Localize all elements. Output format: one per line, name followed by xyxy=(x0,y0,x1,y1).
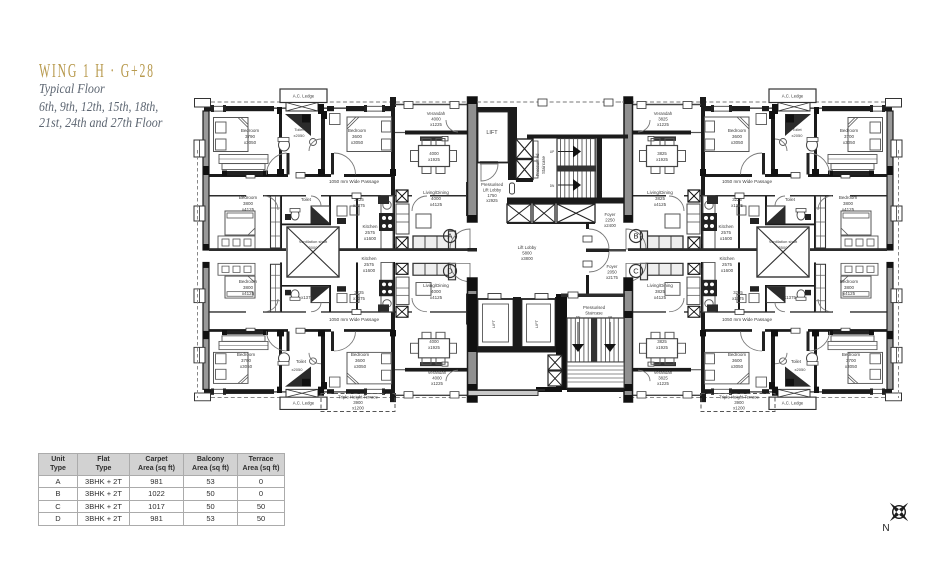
svg-text:Bedroom: Bedroom xyxy=(728,352,747,357)
svg-text:x1600: x1600 xyxy=(363,268,376,273)
svg-text:x2050: x2050 xyxy=(792,133,804,138)
svg-text:Living/Dining: Living/Dining xyxy=(647,283,673,288)
svg-text:Ventilation shaft: Ventilation shaft xyxy=(299,239,328,244)
svg-text:Kitchen: Kitchen xyxy=(361,256,377,261)
svg-text:3825: 3825 xyxy=(657,151,667,156)
svg-text:x3050: x3050 xyxy=(731,140,744,145)
svg-text:Staircase: Staircase xyxy=(541,155,546,174)
svg-text:x2925: x2925 xyxy=(486,198,498,203)
svg-text:x3800: x3800 xyxy=(521,256,533,261)
svg-text:x1200: x1200 xyxy=(733,406,745,411)
svg-text:Living/Dining: Living/Dining xyxy=(423,283,449,288)
svg-text:3700: 3700 xyxy=(846,358,857,363)
svg-text:Toilet: Toilet xyxy=(785,197,796,202)
svg-text:3825: 3825 xyxy=(658,376,668,381)
svg-text:x1225: x1225 xyxy=(431,381,443,386)
svg-text:3000: 3000 xyxy=(309,245,319,250)
svg-text:A.C. Ledge: A.C. Ledge xyxy=(782,94,804,99)
svg-text:Bedroom: Bedroom xyxy=(239,195,258,200)
svg-text:x3050: x3050 xyxy=(351,140,364,145)
svg-text:3800: 3800 xyxy=(243,285,254,290)
svg-text:x1925: x1925 xyxy=(428,345,440,350)
svg-text:3600: 3600 xyxy=(732,358,743,363)
svg-text:4000: 4000 xyxy=(431,117,441,122)
svg-text:A.C. Ledge: A.C. Ledge xyxy=(293,94,315,99)
svg-text:A.C. Ledge: A.C. Ledge xyxy=(782,401,804,406)
svg-text:1750: 1750 xyxy=(487,193,497,198)
svg-text:4000: 4000 xyxy=(429,339,439,344)
svg-text:x1925: x1925 xyxy=(656,157,668,162)
svg-text:1050 mm Wide Passage: 1050 mm Wide Passage xyxy=(722,179,772,184)
svg-text:3800: 3800 xyxy=(843,201,854,206)
svg-text:Lift Lobby: Lift Lobby xyxy=(518,245,537,250)
svg-text:2250: 2250 xyxy=(605,218,615,223)
svg-text:UP: UP xyxy=(550,150,554,154)
svg-text:4000: 4000 xyxy=(432,376,442,381)
svg-text:Staircase: Staircase xyxy=(585,311,603,316)
svg-text:x1375: x1375 xyxy=(731,203,743,208)
svg-text:Triple Height Terrace: Triple Height Terrace xyxy=(338,395,378,400)
svg-text:x3050: x3050 xyxy=(843,140,856,145)
svg-text:x1225: x1225 xyxy=(657,381,669,386)
svg-text:4000: 4000 xyxy=(431,196,442,201)
svg-text:x1925: x1925 xyxy=(656,345,668,350)
svg-text:Verandah: Verandah xyxy=(427,111,446,116)
svg-text:1050 mm Wide Passage: 1050 mm Wide Passage xyxy=(329,317,379,322)
svg-text:x3050: x3050 xyxy=(354,364,367,369)
svg-text:3900: 3900 xyxy=(734,400,744,405)
svg-text:3700: 3700 xyxy=(844,134,855,139)
svg-text:x4125: x4125 xyxy=(843,291,856,296)
svg-text:3225: 3225 xyxy=(733,290,743,295)
svg-text:4000: 4000 xyxy=(429,151,439,156)
svg-text:x1375: x1375 xyxy=(732,296,744,301)
svg-text:4000: 4000 xyxy=(431,289,442,294)
svg-text:LIFT: LIFT xyxy=(534,319,539,328)
svg-text:Bedroom: Bedroom xyxy=(842,352,861,357)
svg-text:3900: 3900 xyxy=(353,400,363,405)
svg-text:3600: 3600 xyxy=(352,134,363,139)
svg-text:x4125: x4125 xyxy=(654,295,667,300)
svg-text:1050 mm Wide Passage: 1050 mm Wide Passage xyxy=(329,179,379,184)
svg-text:3225: 3225 xyxy=(354,197,364,202)
svg-text:3600: 3600 xyxy=(732,134,743,139)
svg-text:x1925: x1925 xyxy=(428,157,440,162)
svg-text:x4125: x4125 xyxy=(654,202,667,207)
svg-text:3800: 3800 xyxy=(243,201,254,206)
svg-text:Bedroom: Bedroom xyxy=(239,279,258,284)
svg-text:Pressurised: Pressurised xyxy=(481,182,504,187)
svg-text:x1600: x1600 xyxy=(721,268,734,273)
svg-text:Toilet: Toilet xyxy=(296,359,307,364)
svg-text:x3050: x3050 xyxy=(244,140,257,145)
svg-text:x1225: x1225 xyxy=(430,122,442,127)
svg-text:3800: 3800 xyxy=(844,285,855,290)
svg-text:x2050: x2050 xyxy=(294,133,306,138)
svg-text:x2400: x2400 xyxy=(604,223,616,228)
svg-text:Toilet: Toilet xyxy=(301,197,312,202)
svg-text:Living/Dining: Living/Dining xyxy=(423,190,449,195)
svg-text:D: D xyxy=(447,267,453,276)
svg-text:x1200: x1200 xyxy=(352,406,364,411)
svg-text:2575: 2575 xyxy=(364,262,375,267)
svg-text:x3050: x3050 xyxy=(731,364,744,369)
svg-text:3225: 3225 xyxy=(732,197,742,202)
svg-text:2575: 2575 xyxy=(722,262,733,267)
svg-text:3790: 3790 xyxy=(241,358,252,363)
svg-text:2575: 2575 xyxy=(365,230,376,235)
svg-text:x2050: x2050 xyxy=(795,367,807,372)
svg-text:DN: DN xyxy=(550,184,555,188)
svg-text:x4125: x4125 xyxy=(242,207,255,212)
svg-text:Toilet: Toilet xyxy=(792,127,802,132)
svg-text:3825: 3825 xyxy=(657,339,667,344)
svg-text:x4125: x4125 xyxy=(242,291,255,296)
svg-text:x1225: x1225 xyxy=(657,122,669,127)
svg-text:Ventilation shaft: Ventilation shaft xyxy=(769,239,798,244)
svg-text:Foyer: Foyer xyxy=(605,212,617,217)
svg-text:x1375: x1375 xyxy=(353,203,365,208)
svg-text:DN: DN xyxy=(576,316,581,320)
svg-text:x2050: x2050 xyxy=(292,367,304,372)
svg-text:LIFT: LIFT xyxy=(486,130,498,136)
svg-text:2575: 2575 xyxy=(721,230,732,235)
svg-text:UP: UP xyxy=(608,316,612,320)
svg-text:Bedroom: Bedroom xyxy=(351,352,370,357)
svg-text:A.C. Ledge: A.C. Ledge xyxy=(293,401,315,406)
svg-text:x1375: x1375 xyxy=(784,295,796,300)
svg-text:3825: 3825 xyxy=(655,196,666,201)
svg-text:x3050: x3050 xyxy=(845,364,858,369)
svg-text:x1375: x1375 xyxy=(353,296,365,301)
svg-text:x4125: x4125 xyxy=(842,207,855,212)
svg-text:Bedroom: Bedroom xyxy=(728,128,747,133)
svg-text:x1600: x1600 xyxy=(364,236,377,241)
svg-text:x4125: x4125 xyxy=(430,202,443,207)
svg-text:3500: 3500 xyxy=(779,245,789,250)
svg-text:Toilet: Toilet xyxy=(294,127,304,132)
svg-text:3225: 3225 xyxy=(354,290,364,295)
svg-text:x4125: x4125 xyxy=(430,295,443,300)
svg-text:3600: 3600 xyxy=(355,358,366,363)
svg-text:x2175: x2175 xyxy=(606,275,618,280)
svg-text:Lift Lobby: Lift Lobby xyxy=(483,187,502,192)
svg-text:Foyer: Foyer xyxy=(607,264,619,269)
svg-text:Kitchen: Kitchen xyxy=(719,256,735,261)
svg-text:Bedroom: Bedroom xyxy=(241,128,260,133)
svg-text:x3050: x3050 xyxy=(240,364,253,369)
svg-text:A: A xyxy=(447,232,452,241)
svg-text:LIFT: LIFT xyxy=(491,319,496,328)
svg-text:Toilet: Toilet xyxy=(791,359,802,364)
svg-text:1050 mm Wide Passage: 1050 mm Wide Passage xyxy=(722,317,772,322)
svg-text:2050: 2050 xyxy=(607,270,617,275)
svg-text:x1600: x1600 xyxy=(720,236,733,241)
svg-text:Pressurised: Pressurised xyxy=(535,153,540,176)
svg-text:3825: 3825 xyxy=(655,289,666,294)
svg-text:Kitchen: Kitchen xyxy=(718,224,734,229)
svg-text:Living/Dining: Living/Dining xyxy=(647,190,673,195)
svg-text:Bedroom: Bedroom xyxy=(839,195,858,200)
svg-text:B: B xyxy=(633,232,638,241)
svg-text:Bedroom: Bedroom xyxy=(840,128,859,133)
svg-text:N: N xyxy=(882,523,889,534)
svg-text:x1375: x1375 xyxy=(301,295,313,300)
svg-text:Verandah: Verandah xyxy=(428,370,447,375)
svg-text:Bedroom: Bedroom xyxy=(348,128,367,133)
svg-text:C: C xyxy=(633,267,639,276)
svg-text:3825: 3825 xyxy=(658,117,668,122)
svg-text:Verandah: Verandah xyxy=(654,111,673,116)
svg-text:5800: 5800 xyxy=(522,251,532,256)
svg-text:Pressurised: Pressurised xyxy=(583,305,606,310)
svg-text:Verandah: Verandah xyxy=(654,370,673,375)
svg-text:3790: 3790 xyxy=(245,134,256,139)
svg-text:Bedroom: Bedroom xyxy=(840,279,859,284)
svg-text:Kitchen: Kitchen xyxy=(362,224,378,229)
svg-text:Bedroom: Bedroom xyxy=(237,352,256,357)
svg-text:Triple Height Terrace: Triple Height Terrace xyxy=(719,395,759,400)
